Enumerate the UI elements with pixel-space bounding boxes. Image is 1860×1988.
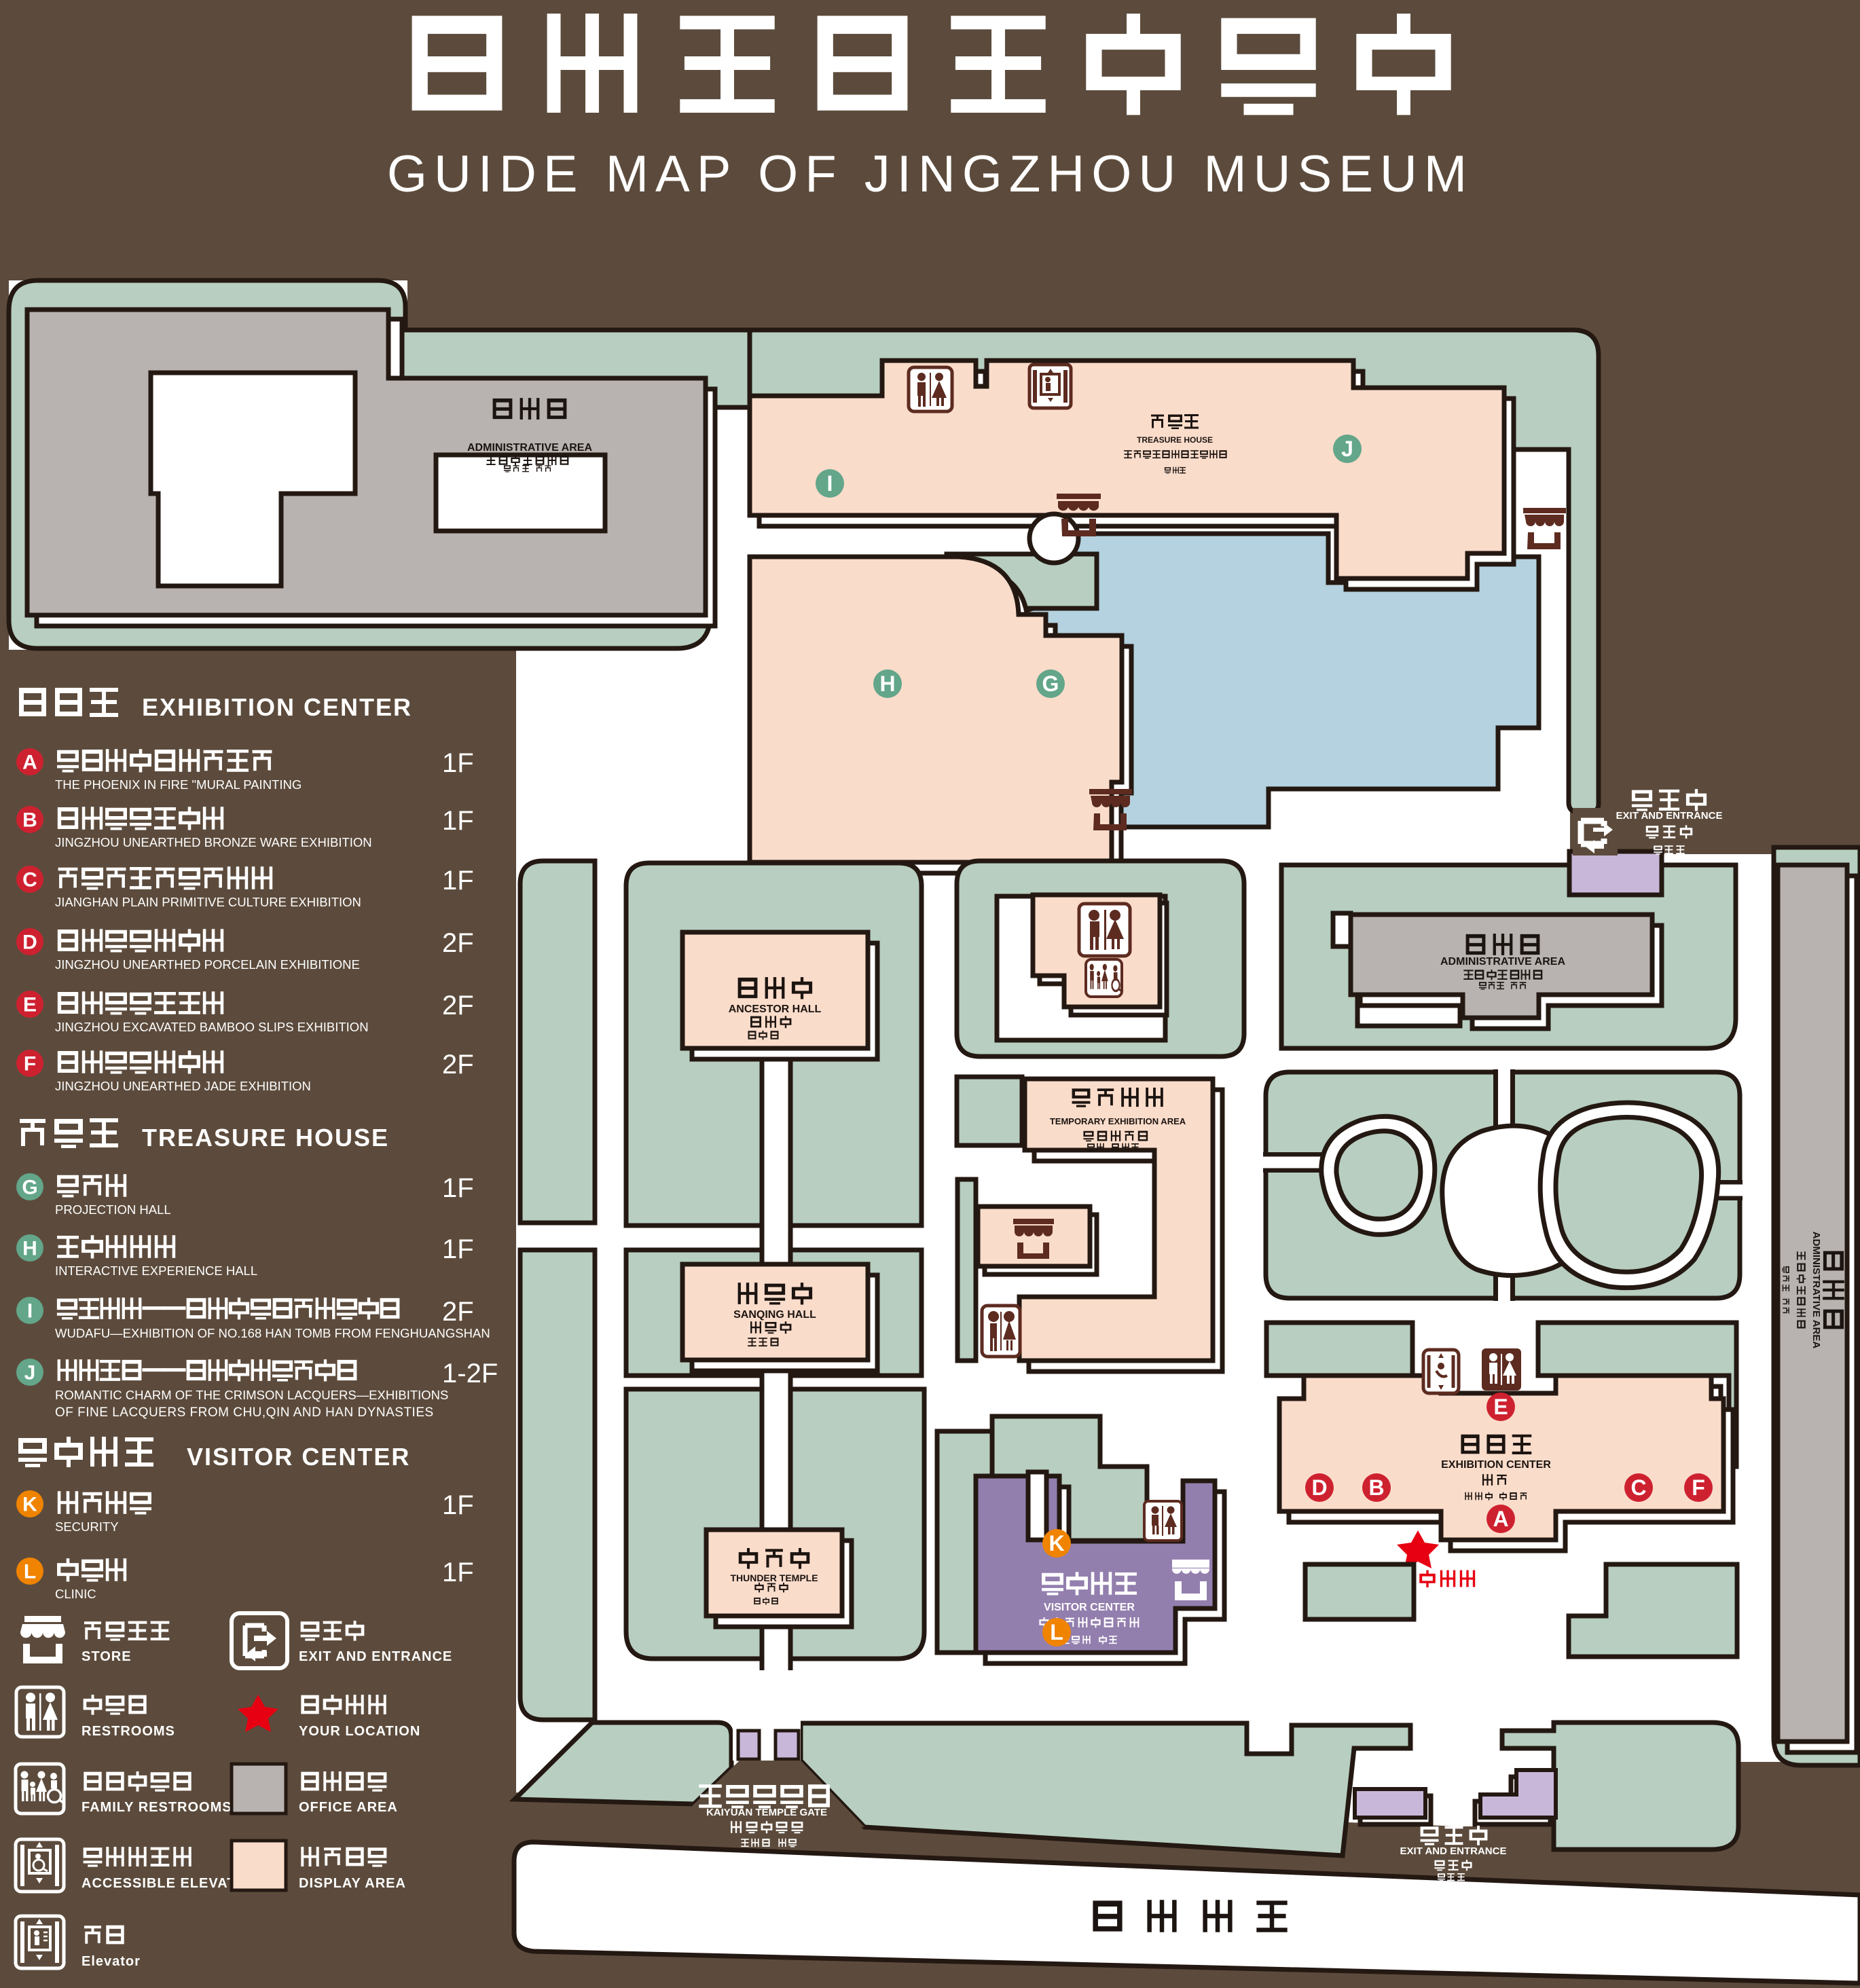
- svg-text:RESTROOMS: RESTROOMS: [81, 1724, 175, 1739]
- svg-text:I: I: [827, 471, 833, 496]
- svg-text:J: J: [1341, 437, 1353, 461]
- svg-text:C: C: [22, 868, 37, 891]
- svg-text:A: A: [22, 751, 37, 773]
- svg-text:JINGZHOU UNEARTHED JADE EXHIBI: JINGZHOU UNEARTHED JADE EXHIBITION: [55, 1079, 311, 1093]
- svg-text:VISITOR CENTER: VISITOR CENTER: [187, 1443, 410, 1471]
- svg-text:L: L: [24, 1560, 36, 1583]
- svg-text:2F: 2F: [442, 928, 474, 958]
- svg-text:CLINIC: CLINIC: [55, 1587, 96, 1601]
- svg-text:PROJECTION HALL: PROJECTION HALL: [55, 1202, 171, 1217]
- svg-text:A: A: [1493, 1507, 1508, 1531]
- svg-text:H: H: [22, 1237, 37, 1259]
- svg-text:K: K: [1048, 1531, 1064, 1556]
- svg-text:B: B: [1368, 1475, 1384, 1500]
- svg-text:2F: 2F: [442, 1050, 474, 1080]
- svg-text:VISITOR CENTER: VISITOR CENTER: [1044, 1602, 1135, 1613]
- svg-text:SECURITY: SECURITY: [55, 1520, 119, 1534]
- svg-text:1F: 1F: [442, 1173, 474, 1203]
- svg-text:EXIT AND ENTRANCE: EXIT AND ENTRANCE: [299, 1649, 452, 1664]
- svg-text:FAMILY RESTROOMS: FAMILY RESTROOMS: [81, 1800, 232, 1815]
- svg-text:1-2F: 1-2F: [442, 1359, 498, 1388]
- svg-text:1F: 1F: [442, 748, 474, 778]
- svg-text:OFFICE AREA: OFFICE AREA: [299, 1800, 398, 1815]
- svg-text:WUDAFU—EXHIBITION OF NO.168 HA: WUDAFU—EXHIBITION OF NO.168 HAN TOMB FRO…: [55, 1326, 490, 1340]
- svg-text:DISPLAY AREA: DISPLAY AREA: [299, 1876, 406, 1891]
- svg-text:K: K: [22, 1493, 37, 1515]
- svg-text:C: C: [1630, 1475, 1646, 1500]
- svg-text:D: D: [1311, 1475, 1327, 1500]
- svg-text:ADMINISTRATIVE AREA: ADMINISTRATIVE AREA: [1810, 1232, 1822, 1349]
- svg-text:ANCESTOR HALL: ANCESTOR HALL: [729, 1004, 822, 1015]
- svg-text:ADMINISTRATIVE AREA: ADMINISTRATIVE AREA: [467, 442, 592, 454]
- svg-text:EXIT AND ENTRANCE: EXIT AND ENTRANCE: [1616, 810, 1723, 822]
- svg-text:SANQING HALL: SANQING HALL: [733, 1309, 816, 1321]
- svg-text:EXIT AND ENTRANCE: EXIT AND ENTRANCE: [1400, 1845, 1507, 1857]
- svg-text:ROMANTIC CHARM OF THE CRIMSON: ROMANTIC CHARM OF THE CRIMSON LACQUERS—E…: [55, 1388, 448, 1402]
- svg-text:F: F: [24, 1052, 36, 1075]
- svg-text:B: B: [22, 809, 37, 831]
- svg-text:J: J: [24, 1361, 36, 1384]
- svg-text:JINGZHOU UNEARTHED BRONZE WARE: JINGZHOU UNEARTHED BRONZE WARE EXHIBITIO…: [55, 835, 372, 849]
- svg-text:JIANGHAN PLAIN PRIMITIVE CULTU: JIANGHAN PLAIN PRIMITIVE CULTURE EXHIBIT…: [55, 895, 361, 909]
- svg-text:INTERACTIVE EXPERIENCE HALL: INTERACTIVE EXPERIENCE HALL: [55, 1264, 257, 1278]
- svg-text:YOUR LOCATION: YOUR LOCATION: [299, 1724, 420, 1739]
- svg-text:D: D: [22, 931, 37, 953]
- svg-text:JINGZHOU UNEARTHED PORCELAIN E: JINGZHOU UNEARTHED PORCELAIN EXHIBITIONE: [55, 957, 360, 972]
- svg-text:EXHIBITION CENTER: EXHIBITION CENTER: [142, 693, 412, 721]
- svg-text:2F: 2F: [442, 1297, 474, 1327]
- svg-text:1F: 1F: [442, 806, 474, 836]
- svg-text:TREASURE HOUSE: TREASURE HOUSE: [142, 1124, 389, 1152]
- svg-text:ADMINISTRATIVE AREA: ADMINISTRATIVE AREA: [1440, 956, 1565, 968]
- svg-text:1F: 1F: [442, 1490, 474, 1520]
- svg-text:STORE: STORE: [81, 1649, 132, 1664]
- svg-text:TEMPORARY EXHIBITION AREA: TEMPORARY EXHIBITION AREA: [1050, 1116, 1186, 1126]
- svg-text:THE PHOENIX IN FIRE "MURAL PAI: THE PHOENIX IN FIRE "MURAL PAINTING: [55, 777, 302, 792]
- svg-text:Elevator: Elevator: [81, 1954, 141, 1969]
- svg-text:GUIDE MAP OF JINGZHOU MUSEUM: GUIDE MAP OF JINGZHOU MUSEUM: [387, 145, 1474, 203]
- svg-text:E: E: [23, 993, 37, 1016]
- svg-text:G: G: [22, 1176, 37, 1198]
- svg-text:EXHIBITION CENTER: EXHIBITION CENTER: [1441, 1459, 1551, 1471]
- svg-text:I: I: [27, 1300, 33, 1322]
- svg-text:E: E: [1493, 1395, 1508, 1419]
- svg-text:JINGZHOU EXCAVATED BAMBOO SLIP: JINGZHOU EXCAVATED BAMBOO SLIPS EXHIBITI…: [55, 1020, 369, 1034]
- svg-text:KAIYUAN TEMPLE GATE: KAIYUAN TEMPLE GATE: [706, 1807, 827, 1818]
- svg-text:1F: 1F: [442, 866, 474, 896]
- svg-text:1F: 1F: [442, 1234, 474, 1264]
- svg-text:OF FINE LACQUERS FROM CHU,QIN: OF FINE LACQUERS FROM CHU,QIN AND HAN DY…: [55, 1405, 434, 1420]
- svg-text:L: L: [1050, 1620, 1063, 1644]
- svg-text:F: F: [1692, 1475, 1705, 1500]
- svg-text:1F: 1F: [442, 1558, 474, 1587]
- svg-text:TREASURE HOUSE: TREASURE HOUSE: [1137, 435, 1213, 445]
- svg-text:THUNDER TEMPLE: THUNDER TEMPLE: [730, 1572, 818, 1583]
- svg-text:2F: 2F: [442, 991, 474, 1020]
- svg-text:H: H: [879, 671, 895, 696]
- svg-text:G: G: [1042, 671, 1059, 696]
